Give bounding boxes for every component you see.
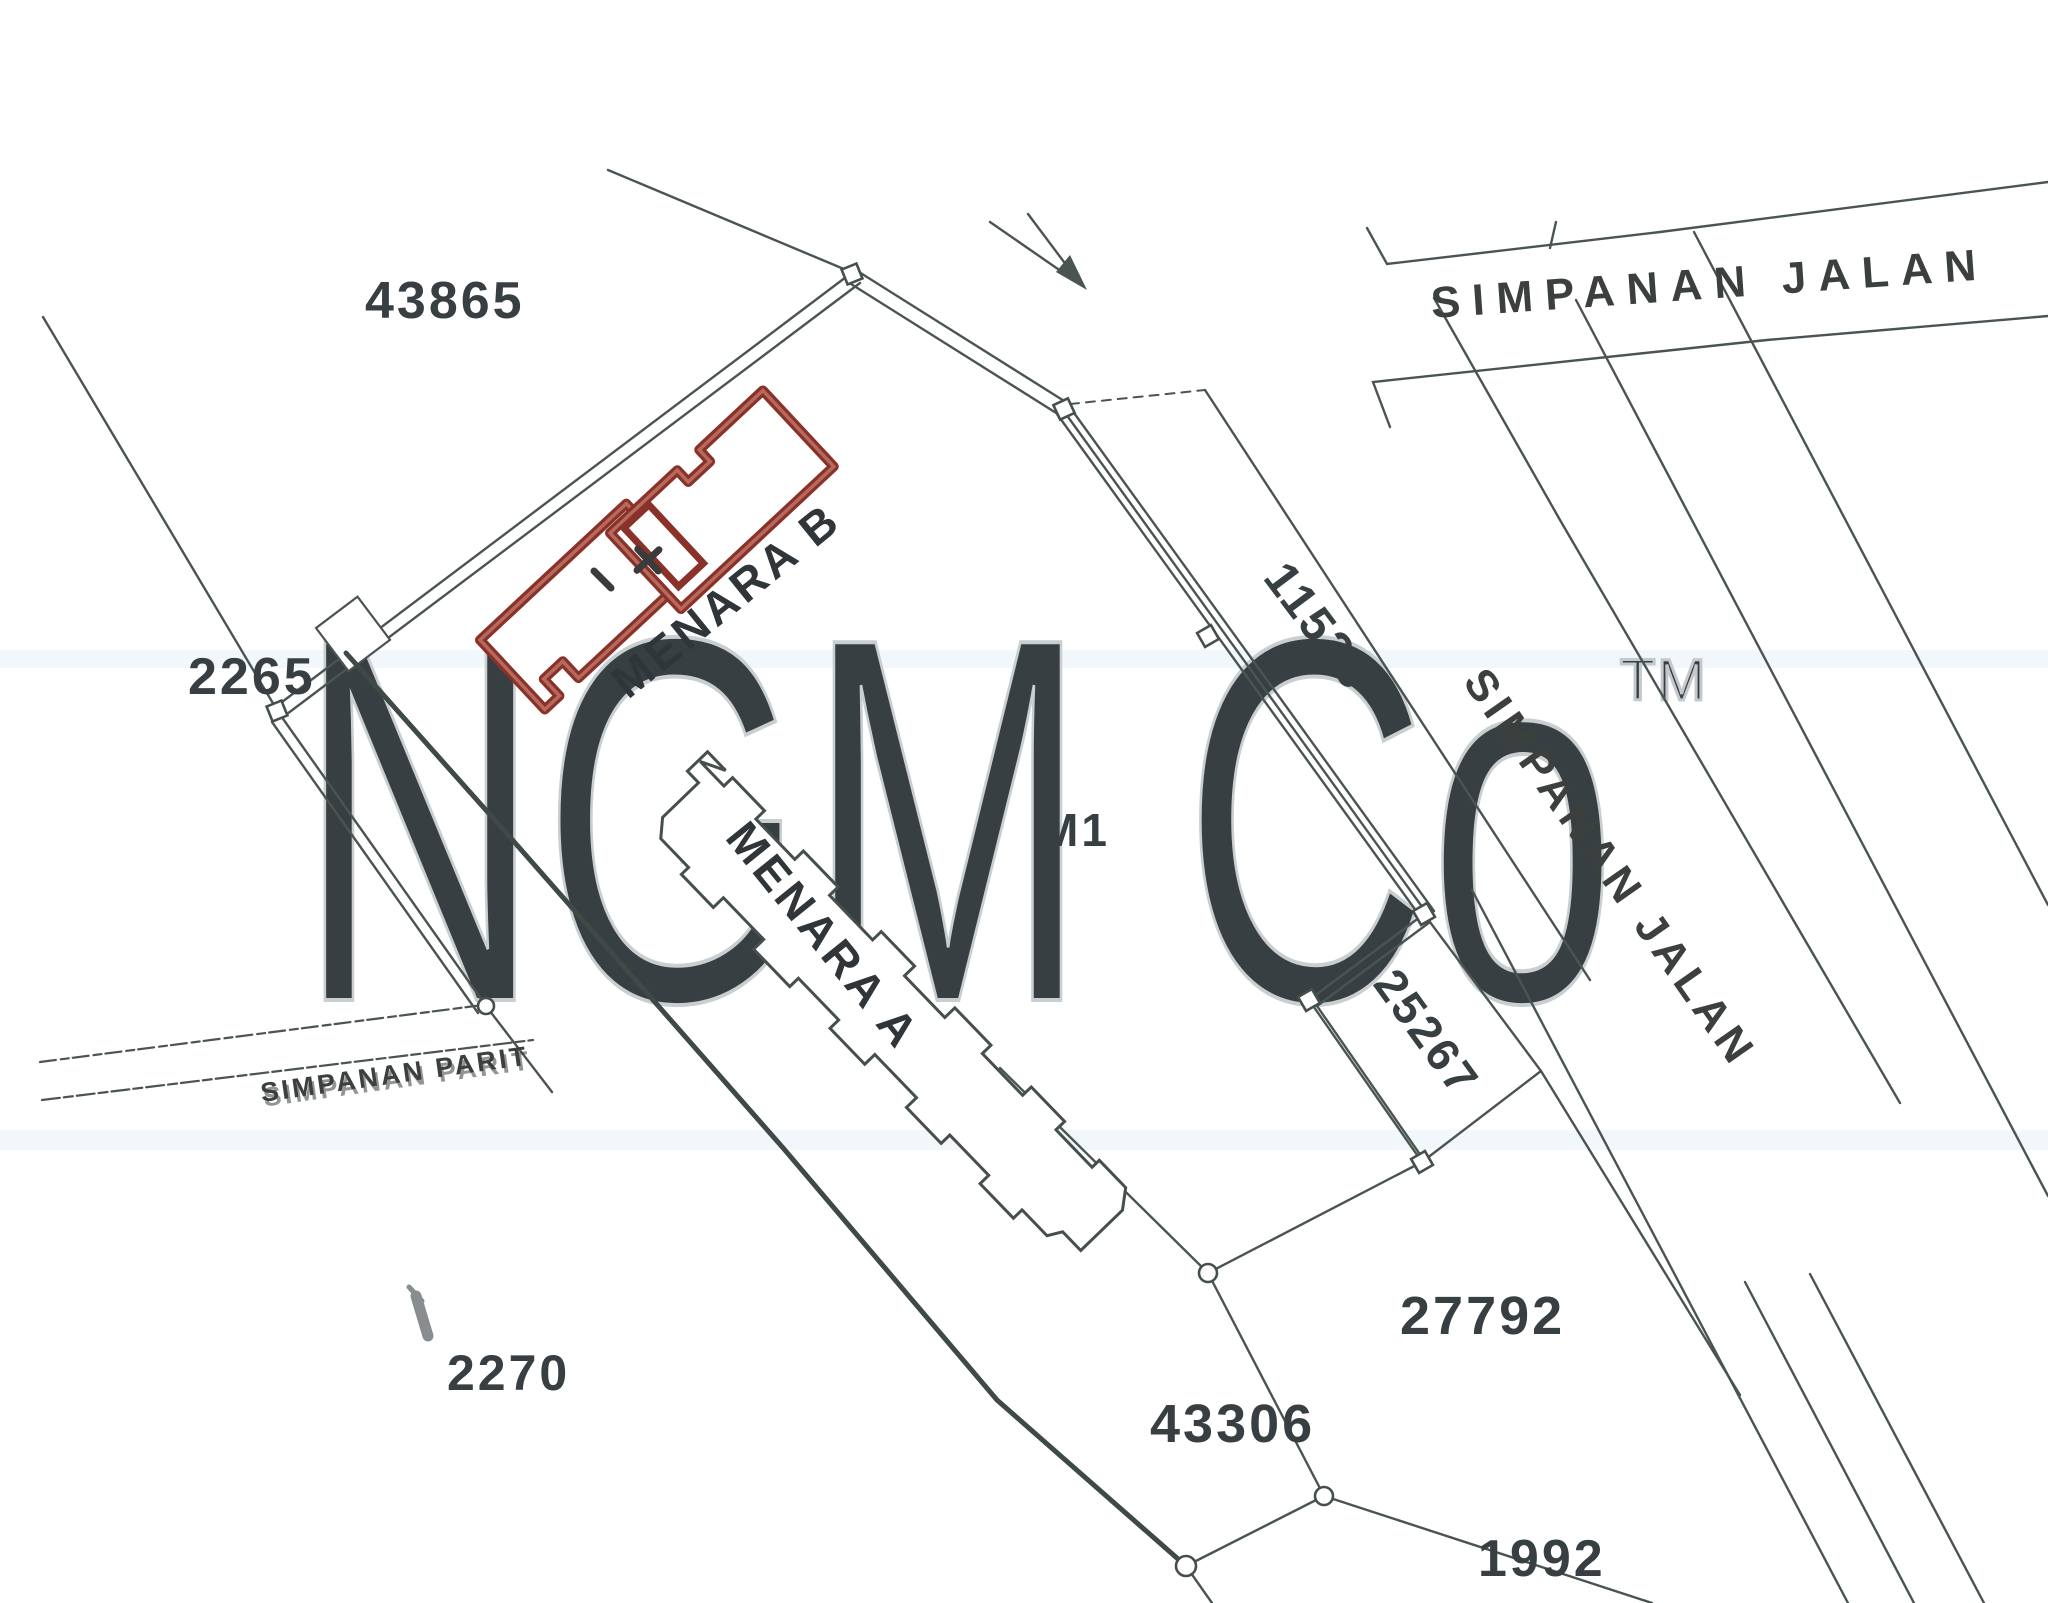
lot-2270-label: 2270	[447, 1345, 570, 1401]
lot-43865-label: 43865	[365, 272, 525, 330]
lot-1992-label: 1992	[1478, 1530, 1606, 1588]
survey-marker-circle	[1315, 1487, 1333, 1505]
lot-27792-label: 27792	[1400, 1286, 1565, 1346]
parcel-m1-label: M1	[1040, 804, 1110, 856]
lot-2265-label: 2265	[188, 648, 316, 706]
watermark-tm: TM	[1620, 648, 1708, 713]
survey-plan-page: NGM Co TM	[0, 0, 2048, 1603]
lot-43306-label: 43306	[1150, 1394, 1315, 1454]
survey-marker-circle	[1176, 1556, 1196, 1576]
survey-marker-circle	[1199, 1264, 1217, 1282]
survey-marker-circle	[478, 998, 494, 1014]
